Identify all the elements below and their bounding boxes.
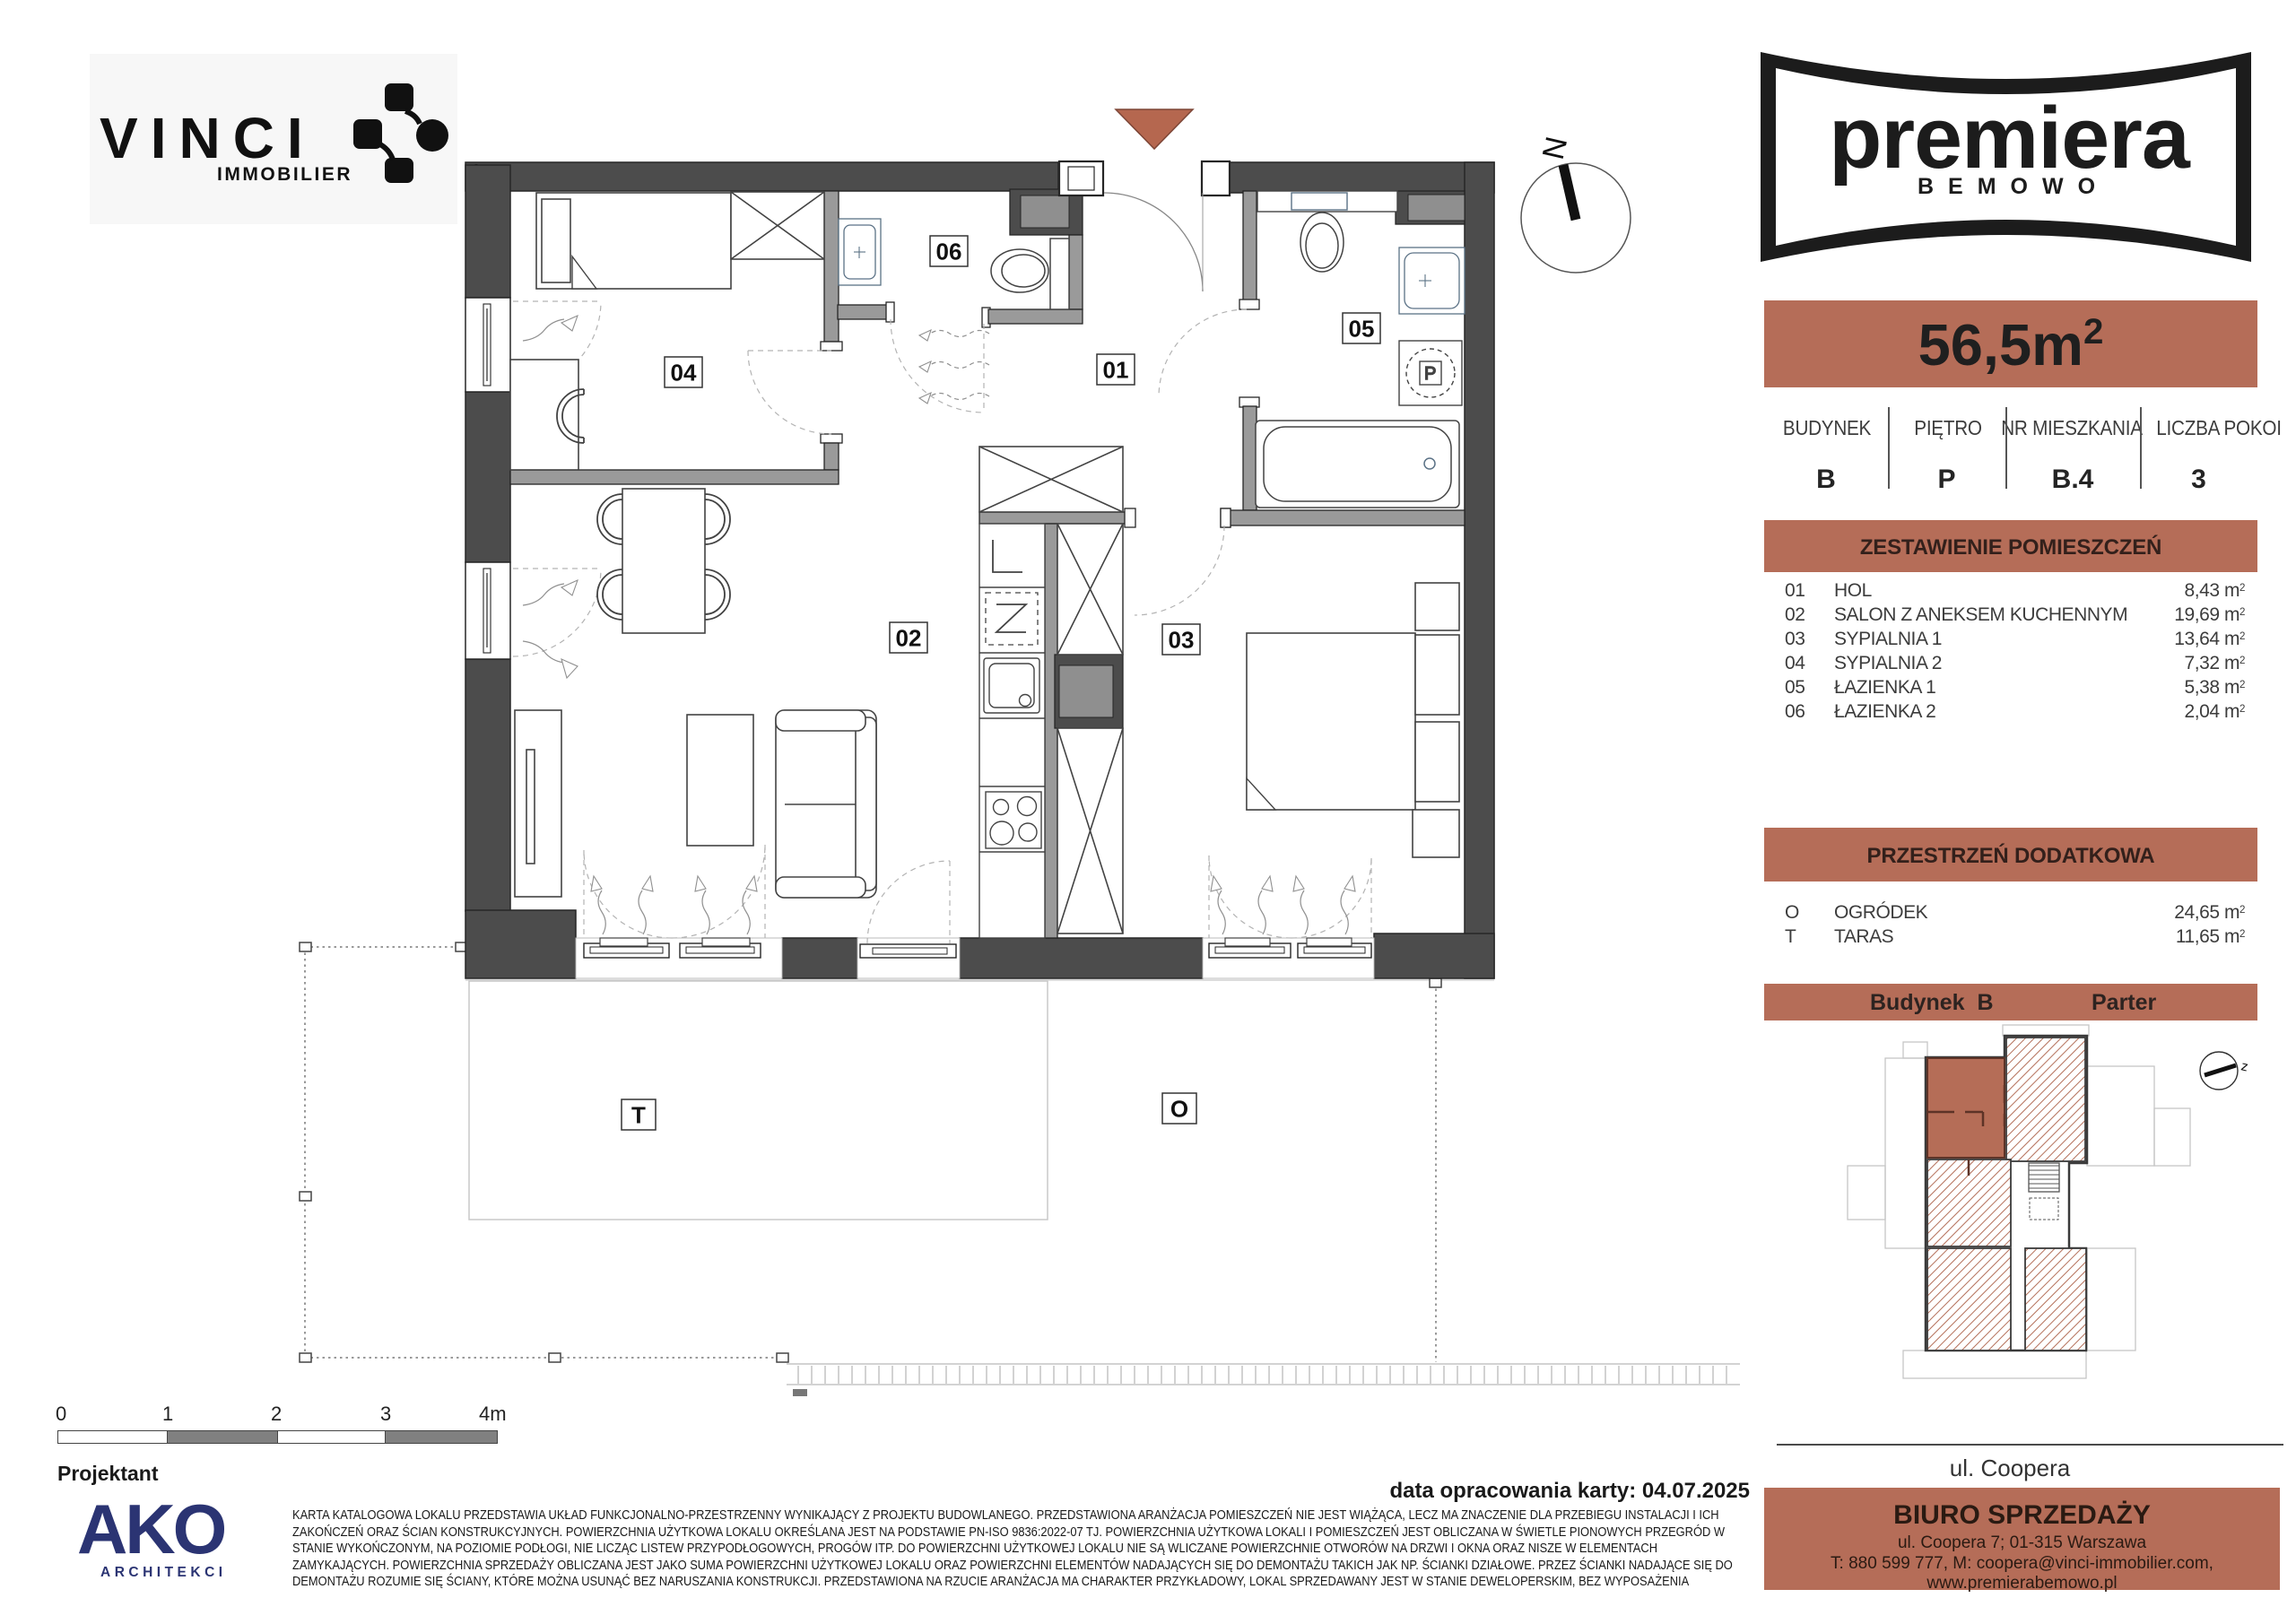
svg-text:z: z	[2239, 1058, 2249, 1074]
svg-text:O: O	[1170, 1095, 1188, 1122]
svg-text:05: 05	[1349, 315, 1375, 342]
svg-text:IMMOBILIER: IMMOBILIER	[217, 164, 352, 185]
svg-text:T: T	[631, 1101, 646, 1128]
svg-text:02: 02	[896, 624, 922, 651]
svg-text:01: 01	[1103, 356, 1129, 383]
svg-text:03: 03	[1169, 626, 1195, 653]
svg-text:BEMOWO: BEMOWO	[1918, 174, 2109, 199]
svg-text:N: N	[1536, 134, 1575, 162]
svg-text:06: 06	[936, 238, 962, 265]
svg-text:VINCI: VINCI	[100, 106, 316, 170]
svg-text:P: P	[1424, 364, 1436, 384]
svg-text:premiera: premiera	[1829, 89, 2191, 187]
svg-text:04: 04	[671, 359, 697, 386]
